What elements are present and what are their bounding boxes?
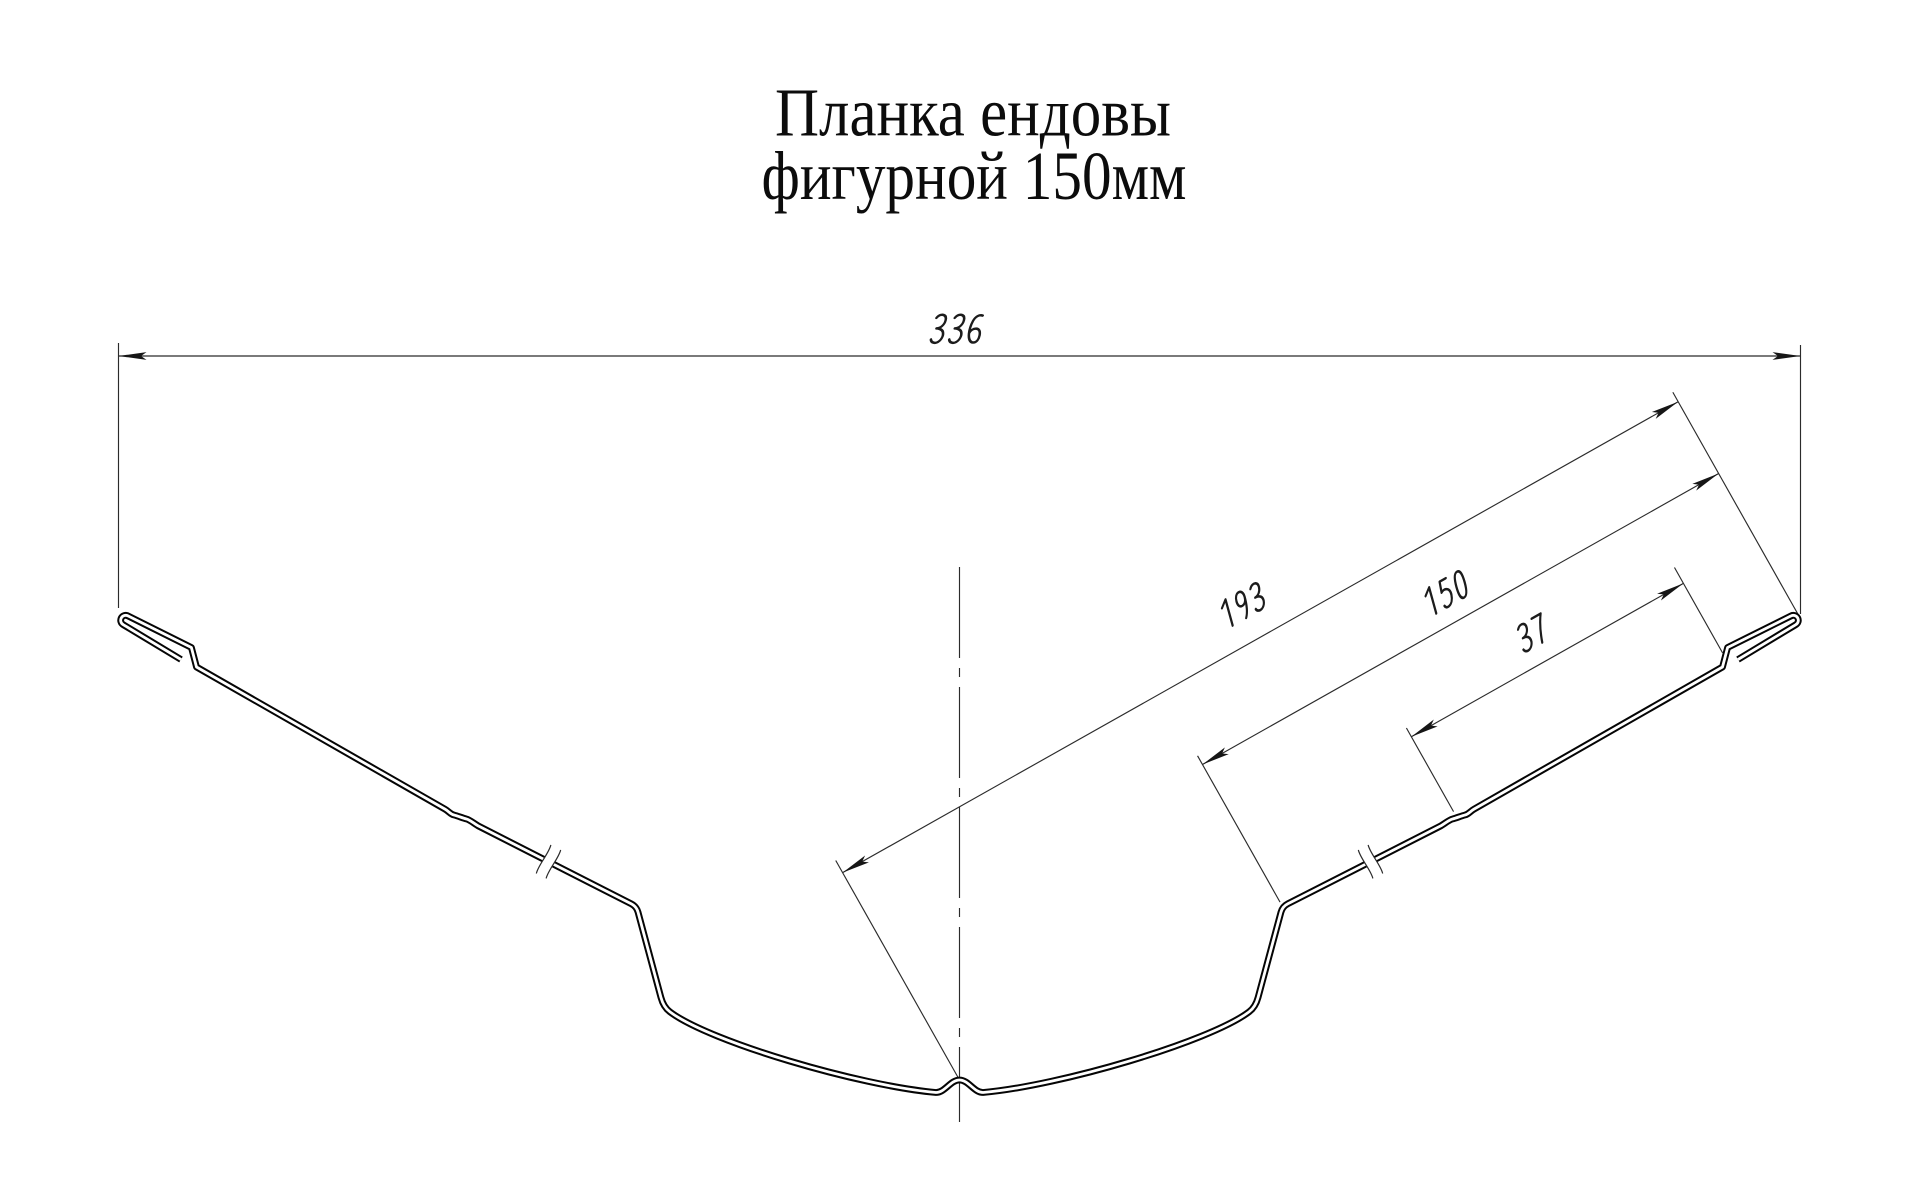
svg-text:фигурной 150мм: фигурной 150мм [762,138,1187,214]
